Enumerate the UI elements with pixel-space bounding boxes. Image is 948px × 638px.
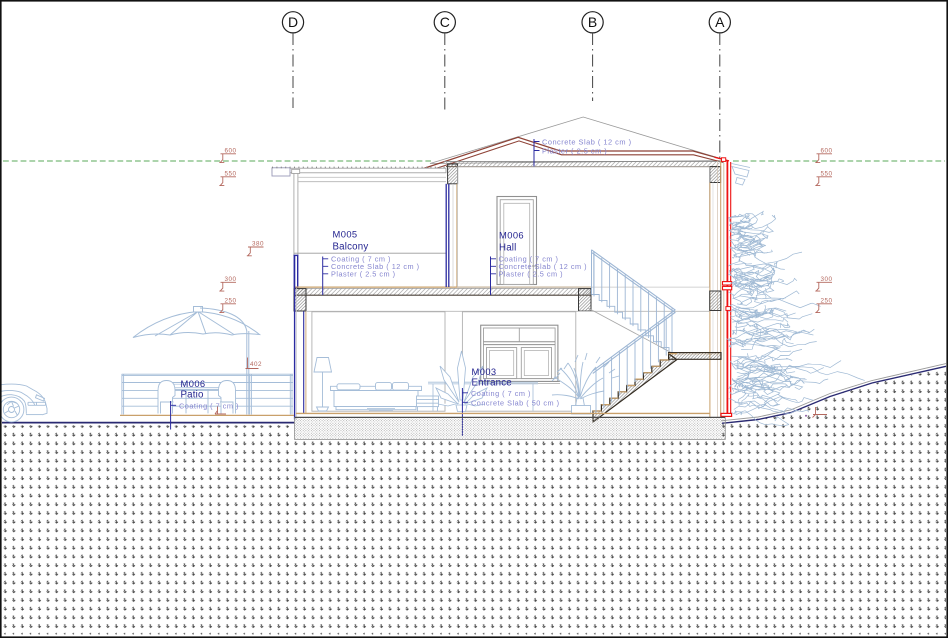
svg-text:Plaster ( 2.5 cm ): Plaster ( 2.5 cm ) bbox=[331, 269, 396, 278]
svg-text:Coating ( 7 cm ): Coating ( 7 cm ) bbox=[471, 389, 531, 398]
svg-text:Plaster ( 2.5 cm ): Plaster ( 2.5 cm ) bbox=[542, 147, 607, 156]
svg-text:380: 380 bbox=[252, 241, 264, 248]
svg-text:Concrete Slab ( 12 cm ): Concrete Slab ( 12 cm ) bbox=[542, 138, 632, 147]
svg-text:Entrance: Entrance bbox=[472, 377, 512, 388]
svg-text:B: B bbox=[588, 14, 597, 30]
svg-text:C: C bbox=[440, 14, 450, 30]
svg-text:Coating ( 7 cm ): Coating ( 7 cm ) bbox=[179, 401, 239, 410]
svg-text:Balcony: Balcony bbox=[333, 242, 369, 253]
svg-text:Hall: Hall bbox=[499, 243, 517, 254]
svg-text:D: D bbox=[288, 14, 298, 30]
svg-text:M006: M006 bbox=[181, 378, 206, 389]
svg-text:600: 600 bbox=[821, 147, 833, 154]
svg-text:300: 300 bbox=[821, 276, 833, 283]
svg-text:M006: M006 bbox=[499, 230, 524, 241]
svg-text:550: 550 bbox=[225, 170, 237, 177]
svg-text:Concrete Slab ( 50 cm ): Concrete Slab ( 50 cm ) bbox=[471, 398, 560, 407]
svg-text:250: 250 bbox=[821, 297, 833, 304]
svg-text:A: A bbox=[715, 14, 725, 30]
svg-text:300: 300 bbox=[225, 276, 237, 283]
svg-text:402: 402 bbox=[250, 361, 262, 368]
svg-text:550: 550 bbox=[821, 170, 833, 177]
svg-text:M003: M003 bbox=[472, 366, 497, 377]
svg-text:600: 600 bbox=[225, 147, 237, 154]
svg-text:Patio: Patio bbox=[181, 389, 204, 400]
svg-text:Plaster ( 2.5 cm ): Plaster ( 2.5 cm ) bbox=[499, 269, 564, 278]
svg-text:M005: M005 bbox=[333, 229, 358, 240]
svg-text:250: 250 bbox=[225, 297, 237, 304]
